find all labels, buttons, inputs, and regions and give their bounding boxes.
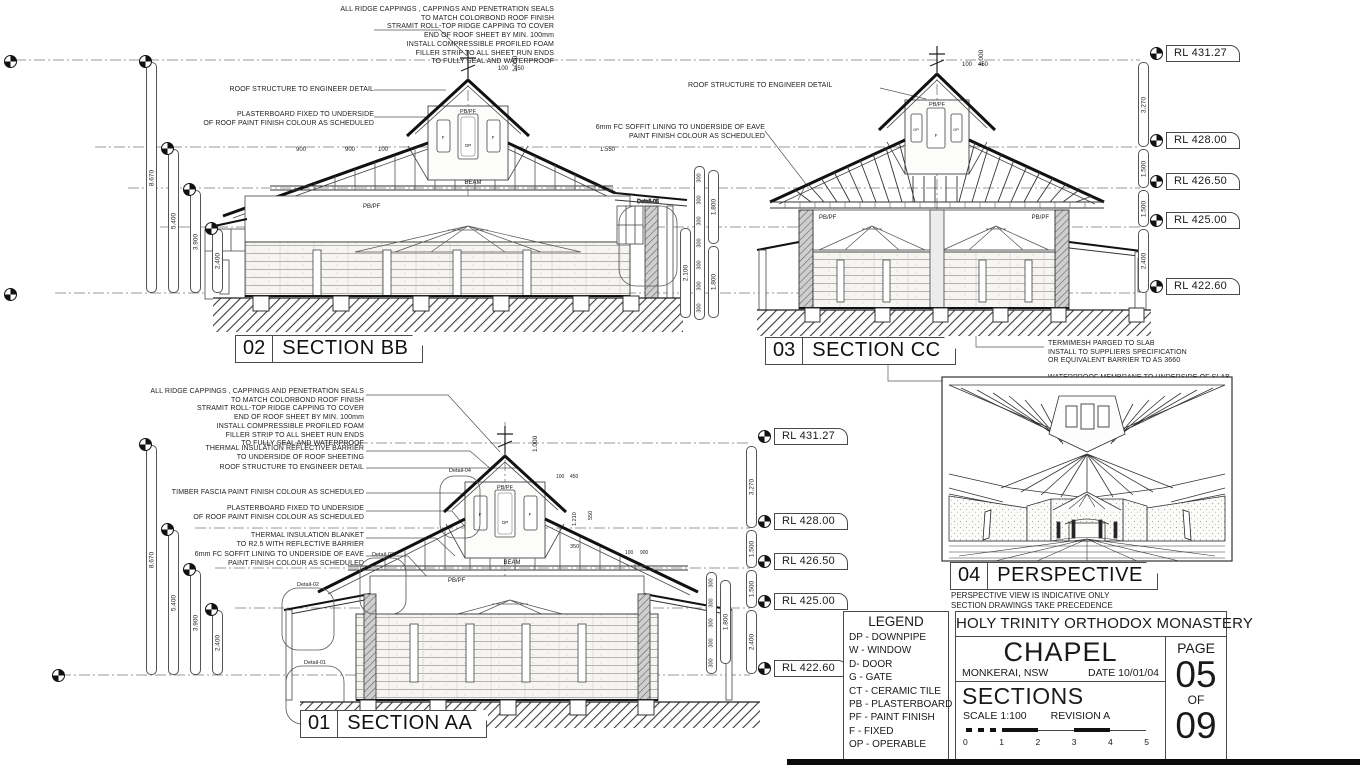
section-bb-title: 02 SECTION BB bbox=[235, 335, 423, 363]
dim-1000-aa: 1.000 bbox=[532, 436, 539, 452]
datum-icon bbox=[161, 523, 174, 536]
dim-1500b-aa: 1.500 bbox=[746, 570, 757, 608]
perspective-note: PERSPECTIVE VIEW IS INDICATIVE ONLY SECT… bbox=[951, 591, 1113, 611]
pbpf-label: PB/PF bbox=[460, 109, 477, 115]
dim-900: 900 bbox=[640, 550, 649, 556]
dim-stack-300-aa: 300300 300300 300 bbox=[706, 572, 717, 674]
perspective-drawing bbox=[941, 376, 1233, 562]
dim-450-bb: 450 bbox=[514, 66, 524, 72]
beam-label: BEAM bbox=[503, 560, 520, 566]
title-block: HOLY TRINITY ORTHODOX MONASTERY CHAPEL M… bbox=[955, 611, 1227, 761]
interior-walls: PB/PF PB/PF bbox=[799, 210, 1069, 312]
dim-450-cc: 450 bbox=[978, 62, 988, 68]
window-op-label: OP bbox=[953, 127, 959, 132]
window-f-label: F bbox=[529, 512, 532, 517]
dim-3900-bb: 3.900 bbox=[190, 190, 201, 293]
cross-finial bbox=[929, 46, 945, 74]
legend-item: CT - CERAMIC TILE bbox=[844, 685, 948, 698]
detail-04-label: Detail-04 bbox=[449, 468, 471, 474]
dim-5400-bb: 5.400 bbox=[168, 149, 179, 293]
pbpf-label: PB/PF bbox=[1032, 215, 1050, 221]
dim-100-bb2: 100 bbox=[378, 147, 388, 153]
dim-2100-mid: 2.100 bbox=[680, 228, 691, 318]
page-total: 09 bbox=[1166, 708, 1226, 744]
datum-icon bbox=[161, 142, 174, 155]
dim-100-bb: 100 bbox=[498, 66, 508, 72]
scale-bar: 01 23 45 bbox=[966, 730, 1146, 747]
pbpf-label: PB/PF bbox=[929, 102, 946, 108]
rl-4226-aa: RL 422.60 bbox=[758, 660, 848, 677]
datum-icon bbox=[1150, 47, 1163, 60]
ground bbox=[213, 296, 683, 332]
datum-icon bbox=[4, 288, 17, 301]
window-op-label: OP bbox=[465, 143, 472, 148]
section-cc-number: 03 bbox=[766, 338, 803, 364]
interior-walls: PB/PF bbox=[245, 196, 630, 300]
section-bb-drawing: PB/PF F OP F BEAM PB/PF Detail-05 bbox=[195, 46, 690, 336]
section-aa-title: 01 SECTION AA bbox=[300, 710, 487, 738]
datum-icon bbox=[1150, 280, 1163, 293]
title-block-left: CHAPEL MONKERAI, NSW DATE 10/01/04 SECTI… bbox=[956, 637, 1166, 759]
dim-1800-aa: 1.800 bbox=[720, 580, 731, 664]
dim-1500-top: 1.500 bbox=[1138, 149, 1149, 188]
legend-item: W - WINDOW bbox=[844, 644, 948, 657]
perspective-name: PERSPECTIVE bbox=[988, 563, 1157, 589]
detail-01-label: Detail-01 bbox=[304, 660, 326, 666]
scale-bar-segment bbox=[1002, 728, 1038, 732]
dim-3270-aa: 3.270 bbox=[746, 446, 757, 528]
datum-icon bbox=[183, 183, 196, 196]
datum-icon bbox=[758, 430, 771, 443]
legend-box: LEGEND DP - DOWNPIPE W - WINDOW D- DOOR … bbox=[843, 611, 949, 761]
cross-finial bbox=[497, 426, 513, 456]
dim-900-bb2: 900 bbox=[345, 147, 355, 153]
dim-3270-top: 3.270 bbox=[1138, 62, 1149, 147]
rl-428-aa: RL 428.00 bbox=[758, 513, 848, 530]
datum-icon bbox=[1150, 134, 1163, 147]
rl-4265-top: RL 426.50 bbox=[1150, 173, 1240, 190]
detail-02-label: Detail-02 bbox=[297, 582, 319, 588]
rl-425-aa: RL 425.00 bbox=[758, 593, 848, 610]
legend-item: G - GATE bbox=[844, 671, 948, 684]
detail-03-label: Detail-03 bbox=[372, 552, 394, 558]
dim-100-cc: 100 bbox=[962, 62, 972, 68]
section-aa-name: SECTION AA bbox=[338, 711, 486, 737]
ground bbox=[757, 308, 1151, 336]
page-number: 05 bbox=[1166, 657, 1226, 693]
datum-icon bbox=[139, 55, 152, 68]
legend-item: OP - OPERABLE bbox=[844, 738, 948, 751]
dim-3900-aa: 3.900 bbox=[190, 570, 201, 675]
lantern: PB/PF F OP F bbox=[407, 80, 529, 180]
sheet-scale: SCALE 1:100 bbox=[963, 710, 1027, 722]
dim-100: 100 bbox=[625, 550, 634, 556]
dim-8670-bb: 8.670 bbox=[146, 62, 157, 293]
section-bb-number: 02 bbox=[236, 336, 273, 362]
cross-finial bbox=[460, 50, 476, 80]
perspective-title: 04 PERSPECTIVE bbox=[950, 562, 1158, 590]
dim-1800-mid-lower: 1.800 bbox=[708, 246, 719, 318]
section-aa-drawing: PB/PF F OP F Detail-04 1.210 550 350 100… bbox=[270, 418, 775, 730]
project-date: DATE 10/01/04 bbox=[1088, 667, 1159, 679]
legend-item: PF - PAINT FINISH bbox=[844, 711, 948, 724]
datum-icon bbox=[758, 555, 771, 568]
dim-1500b-top: 1.500 bbox=[1138, 190, 1149, 227]
dim-550: 550 bbox=[588, 511, 594, 520]
pbpf-label: PB/PF bbox=[448, 578, 466, 584]
window-f-label: F bbox=[935, 133, 938, 138]
legend-item: PB - PLASTERBOARD bbox=[844, 698, 948, 711]
scale-bar-ticks: 01 23 45 bbox=[963, 737, 1149, 747]
detail-05-label: Detail-05 bbox=[637, 199, 659, 205]
dim-8670-aa: 8.670 bbox=[146, 445, 157, 675]
project-location: MONKERAI, NSW bbox=[962, 667, 1048, 679]
rl-4226-top: RL 422.60 bbox=[1150, 278, 1240, 295]
dim-2400-aa: 2.400 bbox=[746, 610, 757, 674]
datum-icon bbox=[758, 595, 771, 608]
drawing-sheet: { "sections": { "bb": {"num": "02", "tit… bbox=[0, 0, 1360, 765]
dim-2400-bb: 2.400 bbox=[212, 229, 223, 293]
datum-icon bbox=[205, 603, 218, 616]
dim-2400-aa2: 2.400 bbox=[212, 610, 223, 675]
lantern: PB/PF F OP F Detail-04 1.210 550 350 100… bbox=[440, 456, 594, 558]
dim-900-bb1: 900 bbox=[296, 147, 306, 153]
legend-item: DP - DOWNPIPE bbox=[844, 631, 948, 644]
interior-walls: PB/PF bbox=[356, 576, 658, 700]
datum-icon bbox=[758, 662, 771, 675]
rl-4265-aa: RL 426.50 bbox=[758, 553, 848, 570]
sheet-bottom-border bbox=[787, 759, 1360, 765]
scale-bar-segment bbox=[1074, 728, 1110, 732]
datum-icon bbox=[1150, 175, 1163, 188]
datum-icon bbox=[4, 55, 17, 68]
rl-428-top: RL 428.00 bbox=[1150, 132, 1240, 149]
legend-item: F - FIXED bbox=[844, 725, 948, 738]
dim-1800-mid-upper: 1.800 bbox=[708, 170, 719, 244]
section-cc-name: SECTION CC bbox=[803, 338, 954, 364]
dim-100: 100 bbox=[556, 474, 565, 480]
sheet-name: SECTIONS bbox=[956, 682, 1165, 710]
dim-stack-300-mid: 300300 300300 300300 300 bbox=[694, 166, 705, 320]
page-block: PAGE 05 OF 09 bbox=[1166, 637, 1226, 759]
sheet-revision: REVISION A bbox=[1051, 710, 1111, 722]
pbpf-label: PB/PF bbox=[819, 215, 837, 221]
project-title: CHAPEL bbox=[956, 637, 1165, 667]
note-termimesh: TERMIMESH PARGED TO SLABINSTALL TO SUPPL… bbox=[1048, 340, 1268, 366]
rl-431-aa: RL 431.27 bbox=[758, 428, 848, 445]
legend-item: D- DOOR bbox=[844, 658, 948, 671]
datum-icon bbox=[139, 438, 152, 451]
section-bb-name: SECTION BB bbox=[273, 336, 422, 362]
dim-1550-bb: 1.550 bbox=[600, 147, 615, 153]
dim-350: 350 bbox=[570, 544, 579, 550]
window-op-label: OP bbox=[913, 127, 919, 132]
pbpf-label: PB/PF bbox=[363, 204, 381, 210]
dim-450: 450 bbox=[570, 474, 579, 480]
datum-icon bbox=[183, 563, 196, 576]
rl-431-top: RL 431.27 bbox=[1150, 45, 1240, 62]
dim-1500-aa: 1.500 bbox=[746, 530, 757, 568]
pbpf-label: PB/PF bbox=[497, 485, 514, 491]
section-cc-title: 03 SECTION CC bbox=[765, 337, 956, 365]
legend-title: LEGEND bbox=[844, 612, 948, 631]
beam-label: BEAM bbox=[464, 180, 481, 186]
section-cc-drawing: PB/PF OP F OP PB/PF PB/PF bbox=[755, 44, 1155, 336]
datum-icon bbox=[205, 222, 218, 235]
datum-icon bbox=[1150, 214, 1163, 227]
rl-425-top: RL 425.00 bbox=[1150, 212, 1240, 229]
window-op-label: OP bbox=[502, 520, 509, 525]
scale-bar-subdivisions bbox=[966, 728, 1002, 732]
dim-2400-top: 2.400 bbox=[1138, 229, 1149, 293]
organisation-title: HOLY TRINITY ORTHODOX MONASTERY bbox=[956, 612, 1226, 637]
dim-1210: 1.210 bbox=[572, 512, 578, 526]
datum-icon bbox=[52, 669, 65, 682]
window-f-label: F bbox=[492, 135, 495, 140]
section-aa-number: 01 bbox=[301, 711, 338, 737]
datum-icon bbox=[758, 515, 771, 528]
window-f-label: F bbox=[442, 135, 445, 140]
perspective-number: 04 bbox=[951, 563, 988, 589]
cupola: PB/PF OP F OP bbox=[879, 74, 995, 174]
dim-5400-aa: 5.400 bbox=[168, 530, 179, 675]
